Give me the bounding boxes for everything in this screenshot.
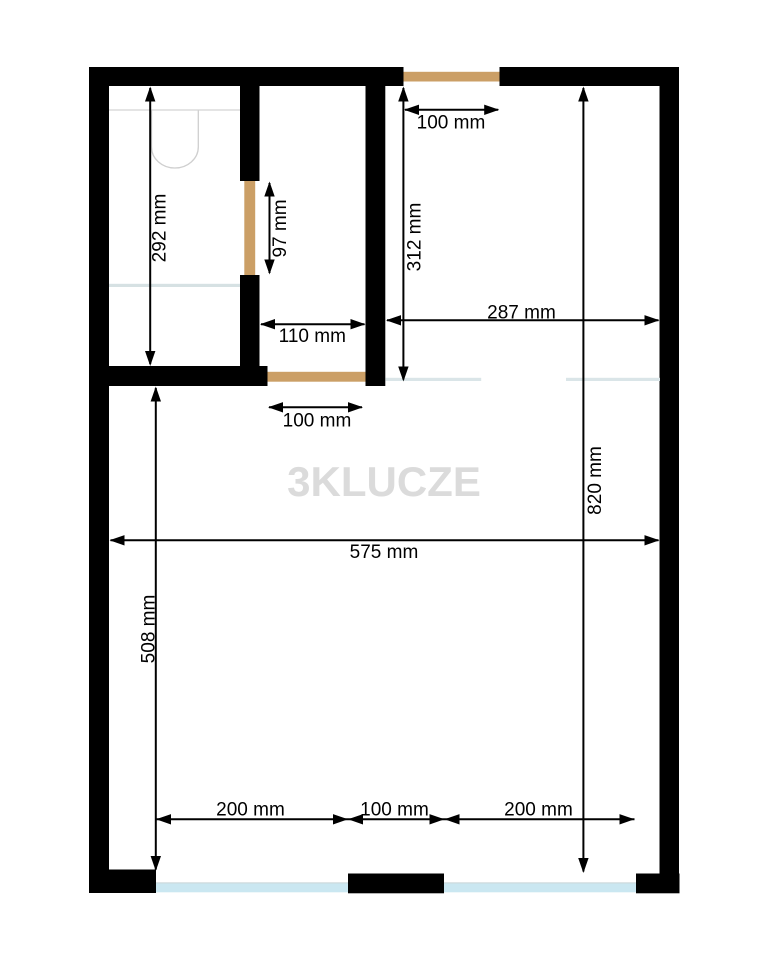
svg-text:312 mm: 312 mm — [404, 203, 425, 272]
svg-text:100 mm: 100 mm — [417, 113, 486, 134]
svg-text:100 mm: 100 mm — [360, 800, 429, 821]
svg-text:3KLUCZE: 3KLUCZE — [287, 458, 481, 505]
svg-text:200 mm: 200 mm — [504, 800, 573, 821]
svg-text:287 mm: 287 mm — [487, 303, 556, 324]
svg-text:100 mm: 100 mm — [283, 411, 352, 432]
svg-text:110 mm: 110 mm — [279, 326, 346, 347]
svg-text:508 mm: 508 mm — [138, 595, 159, 664]
svg-text:292 mm: 292 mm — [150, 194, 171, 263]
svg-text:575 mm: 575 mm — [350, 542, 419, 563]
svg-text:200 mm: 200 mm — [216, 800, 285, 821]
svg-text:97 mm: 97 mm — [270, 199, 291, 257]
svg-text:820 mm: 820 mm — [585, 446, 606, 515]
